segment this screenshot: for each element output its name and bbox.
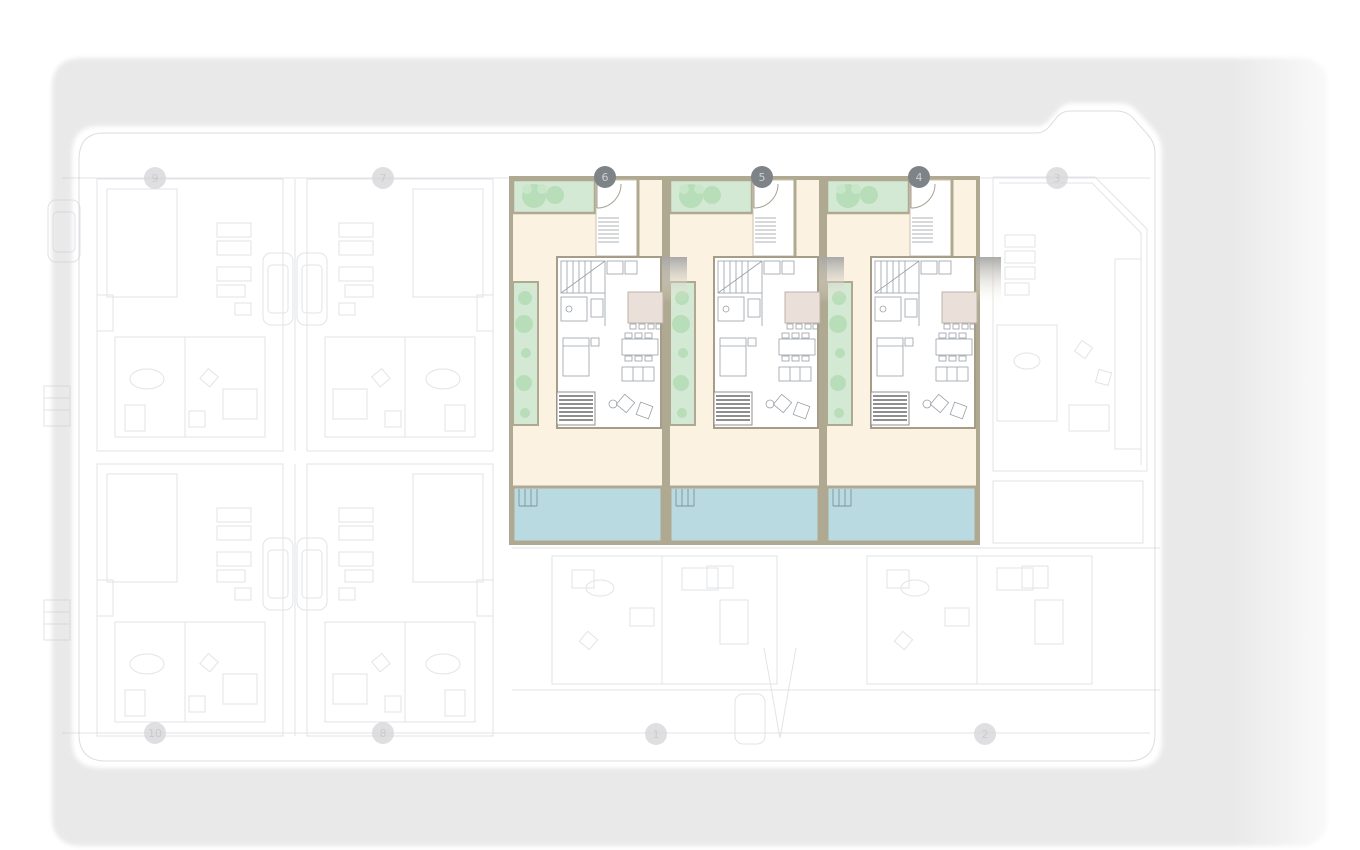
unit-marker-1: 1 bbox=[645, 723, 667, 745]
unit-marker-3: 3 bbox=[1046, 167, 1068, 189]
unit-marker-8: 8 bbox=[372, 722, 394, 744]
unit-marker-1-label: 1 bbox=[653, 729, 660, 740]
unit-marker-9: 9 bbox=[144, 167, 166, 189]
unit-marker-6-label: 6 bbox=[602, 172, 609, 183]
site-plan-canvas: 6 5 4 9 7 3 10 8 1 2 bbox=[0, 0, 1360, 850]
unit-marker-2: 2 bbox=[974, 723, 996, 745]
unit-marker-4[interactable]: 4 bbox=[908, 166, 930, 188]
unit-marker-9-label: 9 bbox=[152, 173, 159, 184]
road-fade-overlay bbox=[1230, 40, 1360, 850]
unit-area-6[interactable] bbox=[511, 178, 687, 543]
site-plan-svg bbox=[0, 0, 1360, 850]
unit-marker-10-label: 10 bbox=[148, 728, 162, 739]
unit-area-4[interactable] bbox=[825, 178, 1001, 543]
unit-marker-4-label: 4 bbox=[916, 172, 923, 183]
unit-marker-2-label: 2 bbox=[982, 729, 989, 740]
unit-marker-3-label: 3 bbox=[1054, 173, 1061, 184]
unit-marker-10: 10 bbox=[144, 722, 166, 744]
unit-marker-5[interactable]: 5 bbox=[751, 166, 773, 188]
unit-marker-7: 7 bbox=[372, 167, 394, 189]
unit-area-5[interactable] bbox=[668, 178, 844, 543]
unit-marker-5-label: 5 bbox=[759, 172, 766, 183]
unit-marker-8-label: 8 bbox=[380, 728, 387, 739]
unit-marker-7-label: 7 bbox=[380, 173, 387, 184]
unit-marker-6[interactable]: 6 bbox=[594, 166, 616, 188]
